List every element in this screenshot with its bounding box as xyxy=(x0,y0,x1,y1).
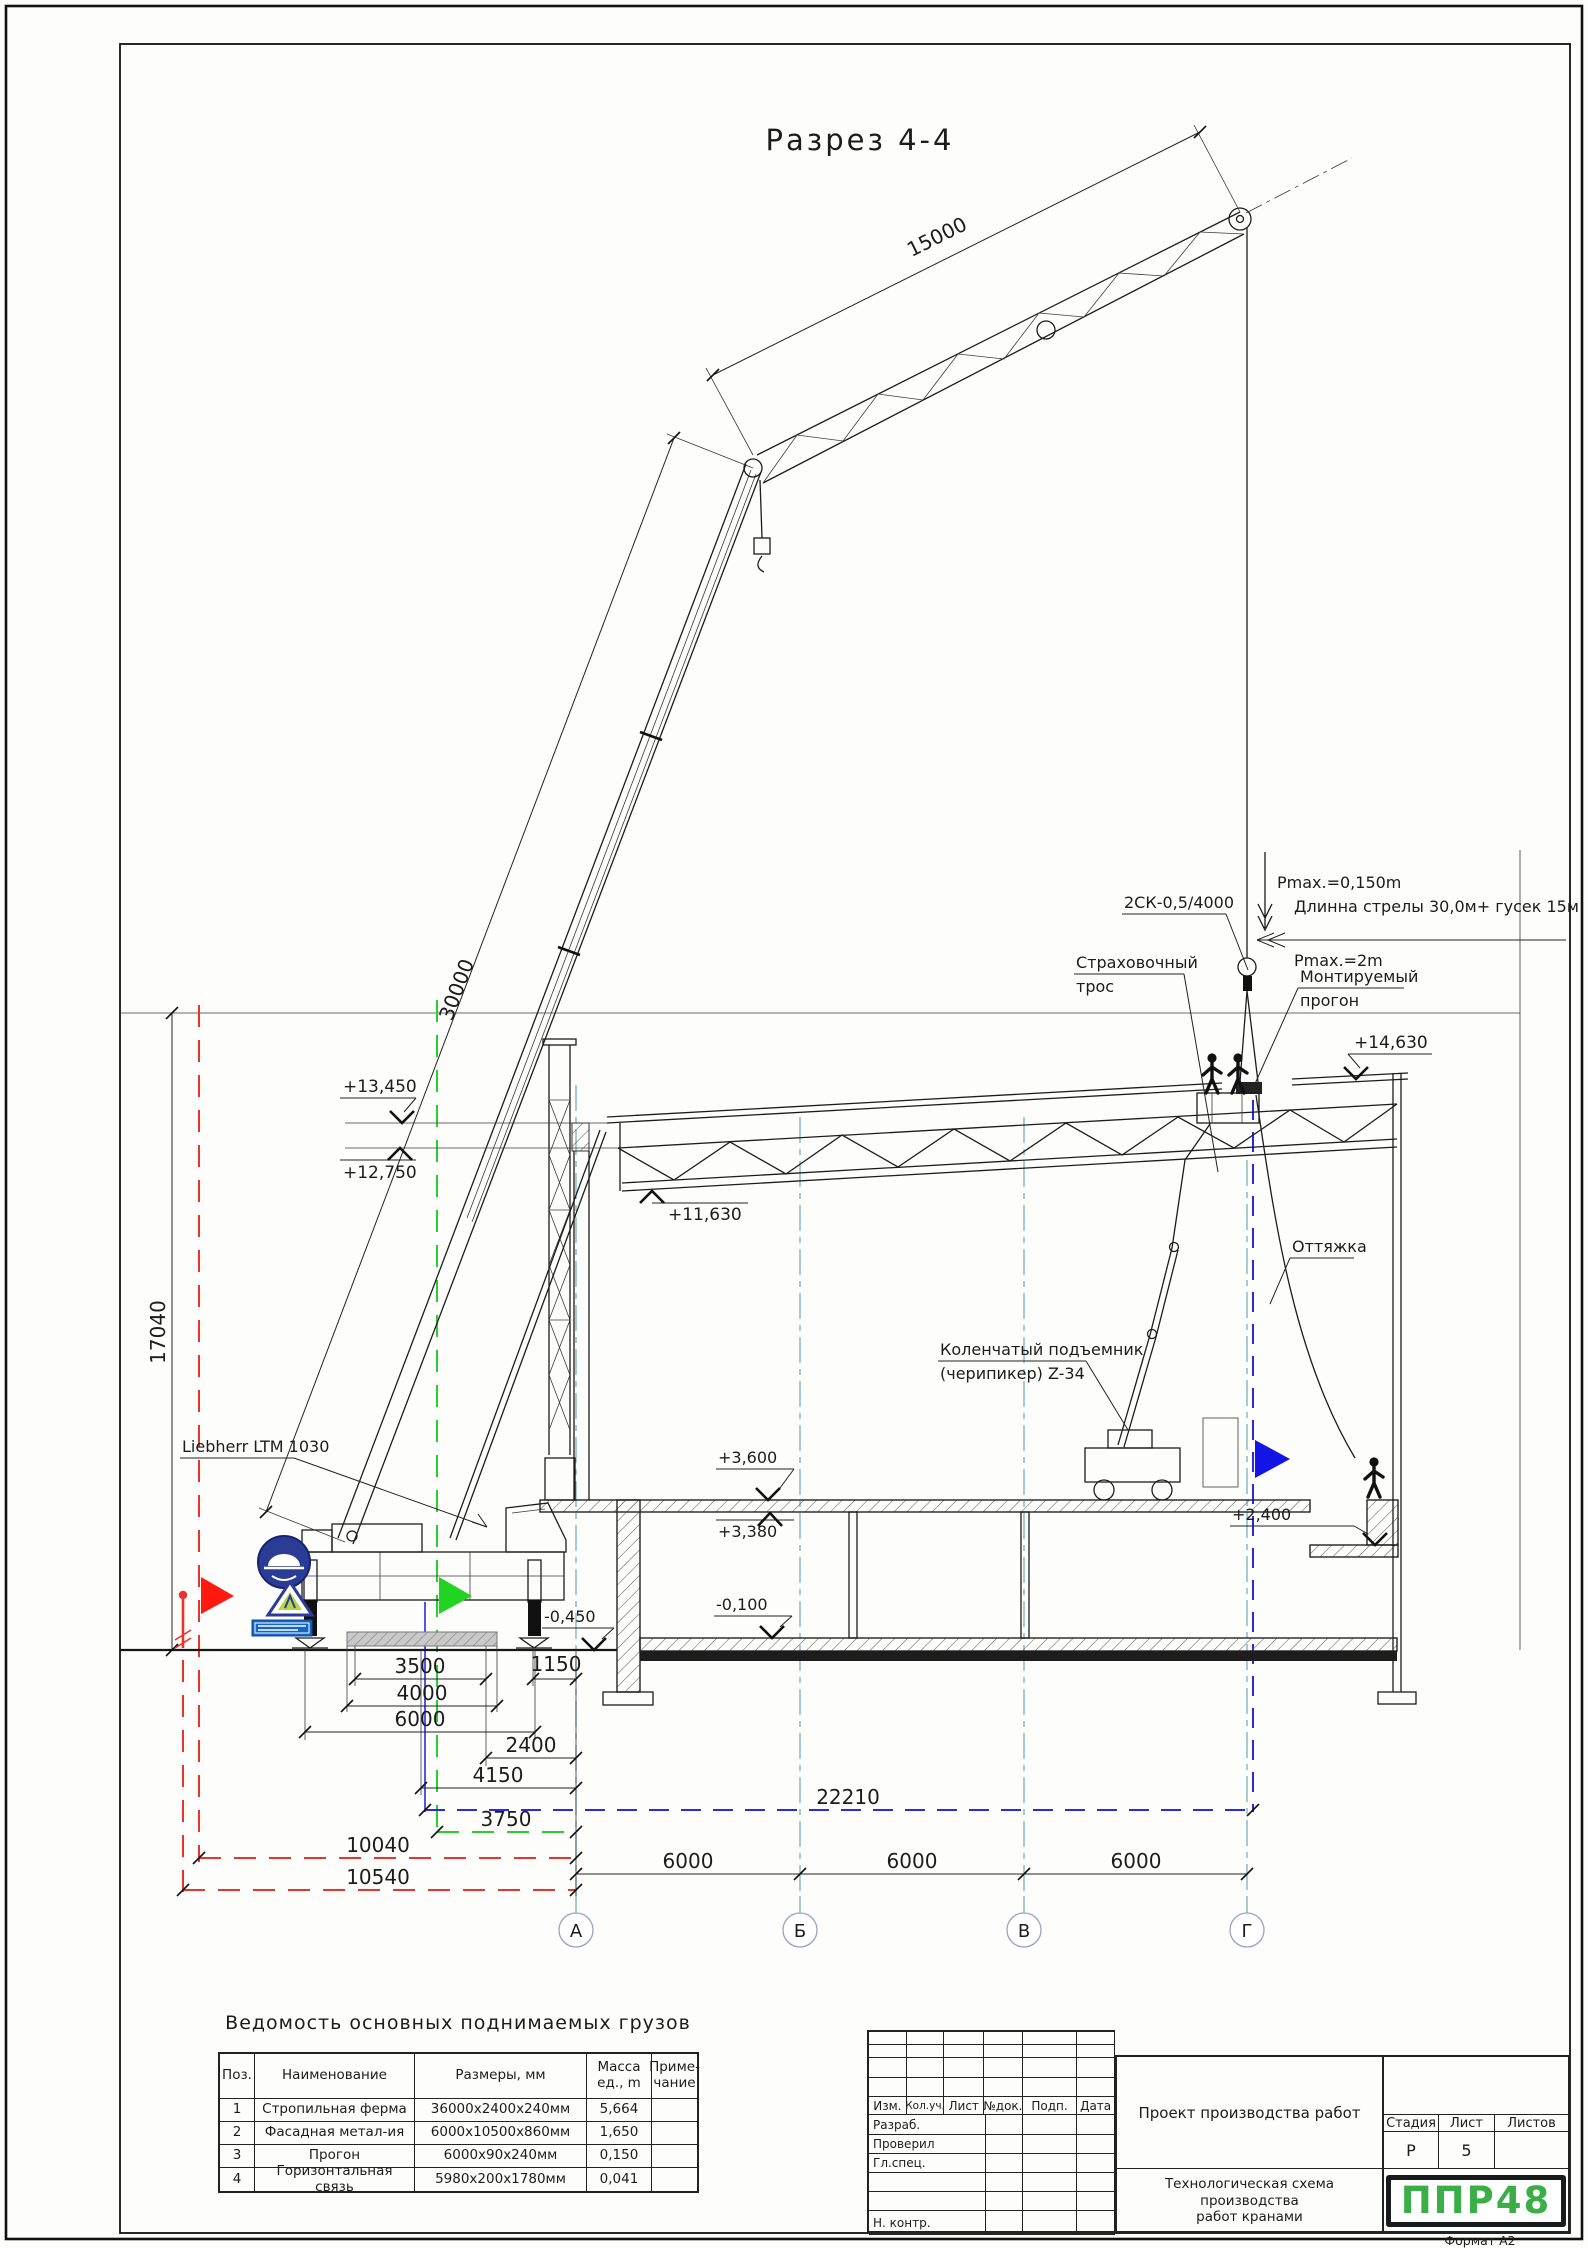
page-title: Разрез 4-4 xyxy=(766,123,955,157)
cell-size: 6000х10500х860мм xyxy=(415,2122,587,2145)
label-mounted-2: прогон xyxy=(1300,991,1359,1010)
cell-note xyxy=(652,2099,697,2122)
cell-size: 36000х2400х240мм xyxy=(415,2099,587,2122)
company-logo: ППР48 xyxy=(1386,2175,1567,2228)
axis-label-a: А xyxy=(570,1921,583,1942)
cell-name: Фасадная метал-ия xyxy=(255,2122,415,2145)
cell-pos: 1 xyxy=(220,2099,255,2122)
stage-value: Р xyxy=(1384,2132,1439,2169)
label-crane-model: Liebherr LTM 1030 xyxy=(182,1437,329,1456)
sheet-frame xyxy=(6,6,1582,2239)
elev-3380: +3,380 xyxy=(718,1522,777,1541)
dim-2400: 2400 xyxy=(506,1733,557,1757)
dim-jib: 15000 xyxy=(903,212,971,262)
col-header-mass: Масса ед., m xyxy=(587,2054,652,2099)
elev-11630: +11,630 xyxy=(668,1205,742,1225)
title-block-revision-grid: Изм. Кол.уч. Лист №док. Подп. Дата Разра… xyxy=(867,2030,1115,2233)
label-sling: 2СК-0,5/4000 xyxy=(1124,893,1234,912)
rev-header: Дата xyxy=(1077,2097,1115,2115)
survey-stake-icon xyxy=(175,1591,191,1648)
elev-14630: +14,630 xyxy=(1354,1033,1428,1053)
left-wall xyxy=(617,1500,640,1692)
elev-3600: +3,600 xyxy=(718,1448,777,1467)
load-table-title: Ведомость основных поднимаемых грузов xyxy=(218,2012,698,2034)
cell-note xyxy=(652,2122,697,2145)
telescopic-boom xyxy=(338,459,770,1544)
hook-block xyxy=(1243,976,1252,991)
project-name: Проект производства работ xyxy=(1117,2057,1382,2169)
label-safety-rope-1: Страховочный xyxy=(1076,953,1198,972)
cell-note xyxy=(652,2145,697,2168)
axis-label-b: Б xyxy=(794,1921,806,1942)
guy-rope xyxy=(1256,1095,1355,1458)
role-cell: Проверил xyxy=(869,2135,986,2154)
pmax-arrow xyxy=(1258,852,1272,930)
cell-pos: 3 xyxy=(220,2145,255,2168)
axis-bubbles: А Б В Г xyxy=(559,1913,1264,1947)
logo-text: ППР48 xyxy=(1401,2179,1552,2222)
label-mounted-1: Монтируемый xyxy=(1300,967,1418,986)
label-boom-length: Длинна стрелы 30,0м+ гусек 15м xyxy=(1294,897,1579,916)
drawing-canvas: Разрез 4-4 А Б В Г xyxy=(0,0,1588,2245)
elev-m100: -0,100 xyxy=(716,1595,768,1614)
label-pmax-top: Pmax.=0,150m xyxy=(1277,873,1401,892)
col-header-note: Приме- чание xyxy=(652,2054,697,2099)
cell-pos: 2 xyxy=(220,2122,255,2145)
cell-mass: 1,650 xyxy=(587,2122,652,2145)
cell-note xyxy=(652,2168,697,2191)
label-lift-1: Коленчатый подъемник xyxy=(940,1340,1144,1359)
markers xyxy=(175,1440,1290,1648)
boom-lift xyxy=(1085,1093,1259,1500)
dim-height: 17040 xyxy=(146,1300,170,1364)
doc-title-line2: работ кранами xyxy=(1196,2209,1303,2226)
role-cell: Разраб. xyxy=(869,2115,986,2135)
document-title: Технологическая схема производства работ… xyxy=(1117,2169,1382,2233)
elev-2400: +2,400 xyxy=(1232,1505,1291,1524)
hoist-line xyxy=(1236,228,1262,1094)
dim-10040: 10040 xyxy=(346,1833,410,1857)
worker-figure xyxy=(1203,1053,1221,1093)
grid-axes: А Б В Г xyxy=(559,1085,1264,1947)
rev-header: Изм. xyxy=(869,2097,907,2115)
lift-basket xyxy=(1197,1093,1259,1123)
worker-figure xyxy=(1365,1457,1383,1497)
callouts: Pmax.=0,150m 2СК-0,5/4000 Длинна стрелы … xyxy=(180,852,1579,1527)
dim-edge: 1150 xyxy=(531,1652,582,1676)
axis-label-v: В xyxy=(1018,1921,1030,1942)
col-header-pos: Поз. xyxy=(220,2054,255,2099)
cell-mass: 0,150 xyxy=(587,2145,652,2168)
blue-flag-icon xyxy=(1255,1440,1290,1478)
format-label: Формат А2 xyxy=(1395,2233,1565,2248)
dim-bay1: 6000 xyxy=(663,1849,714,1873)
doc-title-line1: Технологическая схема производства xyxy=(1117,2176,1382,2210)
label-guy: Оттяжка xyxy=(1292,1237,1367,1256)
label-lift-2: (черипикер) Z-34 xyxy=(940,1364,1085,1383)
elev-13450: +13,450 xyxy=(343,1077,417,1097)
role-cell: Гл.спец. xyxy=(869,2154,986,2173)
dim-span: 6000 xyxy=(395,1707,446,1731)
dim-22210: 22210 xyxy=(816,1785,880,1809)
floor-slab-2400 xyxy=(1310,1545,1398,1557)
title-block-right: Стадия Лист Листов Р 5 ППР48 xyxy=(1382,2055,1570,2233)
col-header-size: Размеры, мм xyxy=(415,2054,587,2099)
dim-beam: 4000 xyxy=(397,1681,448,1705)
sheets-label: Листов xyxy=(1495,2115,1568,2132)
workers xyxy=(1203,1053,1383,1497)
table-row: 2 Фасадная метал-ия 6000х10500х860мм 1,6… xyxy=(220,2122,697,2145)
floor-slab-3600 xyxy=(540,1500,1310,1512)
outrigger-pad xyxy=(347,1632,497,1646)
cell-size: 6000х90х240мм xyxy=(415,2145,587,2168)
stage-label: Стадия xyxy=(1384,2115,1439,2132)
rev-header: Кол.уч. xyxy=(907,2097,945,2115)
lattice-jib xyxy=(757,158,1352,483)
aux-hook xyxy=(758,556,764,572)
dim-4150: 4150 xyxy=(473,1763,524,1787)
table-row: 1 Стропильная ферма 36000х2400х240мм 5,6… xyxy=(220,2099,697,2122)
helmet-sign-icon xyxy=(258,1536,310,1588)
dim-bay3: 6000 xyxy=(1111,1849,1162,1873)
cell-name: Горизонтальная связь xyxy=(255,2168,415,2191)
cell-pos: 4 xyxy=(220,2168,255,2191)
elev-m450: -0,450 xyxy=(544,1607,596,1626)
sheets-total xyxy=(1495,2132,1568,2169)
dim-bay2: 6000 xyxy=(887,1849,938,1873)
col-header-name: Наименование xyxy=(255,2054,415,2099)
elev-12750: +12,750 xyxy=(343,1163,417,1183)
load-table: Поз. Наименование Размеры, мм Масса ед.,… xyxy=(218,2052,699,2193)
crane-turret xyxy=(332,1524,422,1552)
label-safety-rope-2: трос xyxy=(1076,977,1114,996)
cell-mass: 0,041 xyxy=(587,2168,652,2191)
role-cell xyxy=(869,2173,986,2192)
info-sign-icon xyxy=(252,1620,312,1636)
green-flag-icon xyxy=(439,1577,472,1614)
crane-carrier xyxy=(292,1503,566,1648)
sheet-label: Лист xyxy=(1439,2115,1495,2132)
title-block-center: Проект производства работ Технологическа… xyxy=(1115,2055,1382,2233)
load-table-header-row: Поз. Наименование Размеры, мм Масса ед.,… xyxy=(220,2054,697,2099)
cell-mass: 5,664 xyxy=(587,2099,652,2122)
role-cell xyxy=(869,2192,986,2211)
ground-floor-slab xyxy=(640,1638,1397,1651)
axis-label-g: Г xyxy=(1242,1921,1253,1942)
role-cell: Н. контр. xyxy=(869,2211,986,2235)
sheet-number: 5 xyxy=(1439,2132,1495,2169)
table-row: 4 Горизонтальная связь 5980х200х1780мм 0… xyxy=(220,2168,697,2191)
rev-header: №док. xyxy=(984,2097,1023,2115)
rev-header: Лист xyxy=(944,2097,984,2115)
dim-3750: 3750 xyxy=(481,1807,532,1831)
red-flag-icon xyxy=(201,1577,234,1614)
cell-size: 5980х200х1780мм xyxy=(415,2168,587,2191)
rev-header: Подп. xyxy=(1023,2097,1078,2115)
ground-floor-base xyxy=(640,1651,1397,1661)
cell-name: Стропильная ферма xyxy=(255,2099,415,2122)
dim-pad: 3500 xyxy=(395,1654,446,1678)
revision-header-row: Изм. Кол.уч. Лист №док. Подп. Дата xyxy=(869,2097,1115,2115)
facade-column xyxy=(543,1039,589,1500)
dim-10540: 10540 xyxy=(346,1865,410,1889)
